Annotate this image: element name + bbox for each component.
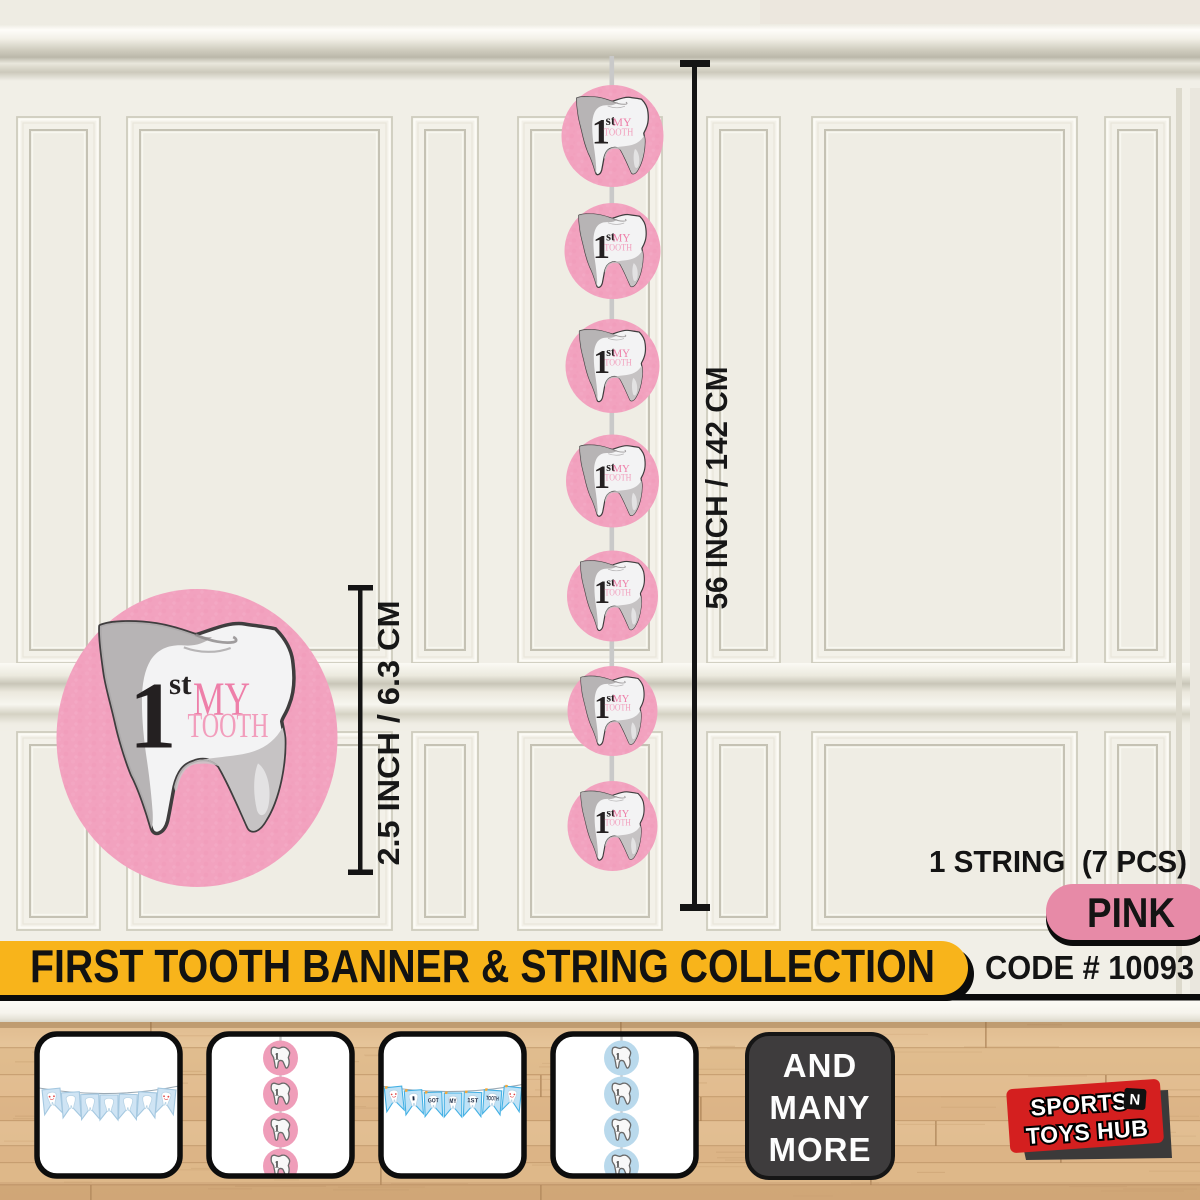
svg-text:56 INCH / 142 CM: 56 INCH / 142 CM xyxy=(699,367,734,610)
svg-text:1: 1 xyxy=(274,1087,279,1098)
svg-text:TOOTH: TOOTH xyxy=(486,1096,499,1103)
svg-text:MORE: MORE xyxy=(769,1131,872,1168)
svg-text:1ST: 1ST xyxy=(467,1098,478,1104)
svg-text:MY: MY xyxy=(449,1099,456,1105)
svg-text:1: 1 xyxy=(615,1159,620,1170)
svg-text:TOOTH: TOOTH xyxy=(188,706,269,745)
svg-text:FIRST TOOTH BANNER & STRING CO: FIRST TOOTH BANNER & STRING COLLECTION xyxy=(30,940,935,992)
svg-text:1: 1 xyxy=(615,1123,620,1134)
svg-text:PINK: PINK xyxy=(1087,889,1175,936)
svg-text:1 STRING (7 PCS): 1 STRING (7 PCS) xyxy=(929,844,1187,879)
svg-text:AND: AND xyxy=(783,1047,858,1084)
svg-text:2.5 INCH / 6.3 CM: 2.5 INCH / 6.3 CM xyxy=(371,601,406,866)
svg-text:N: N xyxy=(1129,1091,1141,1109)
svg-text:1: 1 xyxy=(274,1051,279,1062)
svg-text:GOT: GOT xyxy=(428,1098,439,1104)
svg-text:1: 1 xyxy=(274,1159,279,1170)
svg-text:st: st xyxy=(169,666,192,701)
svg-text:MANY: MANY xyxy=(769,1089,870,1126)
svg-text:1: 1 xyxy=(274,1123,279,1134)
svg-text:1: 1 xyxy=(615,1051,620,1062)
svg-text:1: 1 xyxy=(615,1087,620,1098)
svg-text:CODE # 10093: CODE # 10093 xyxy=(985,949,1194,986)
